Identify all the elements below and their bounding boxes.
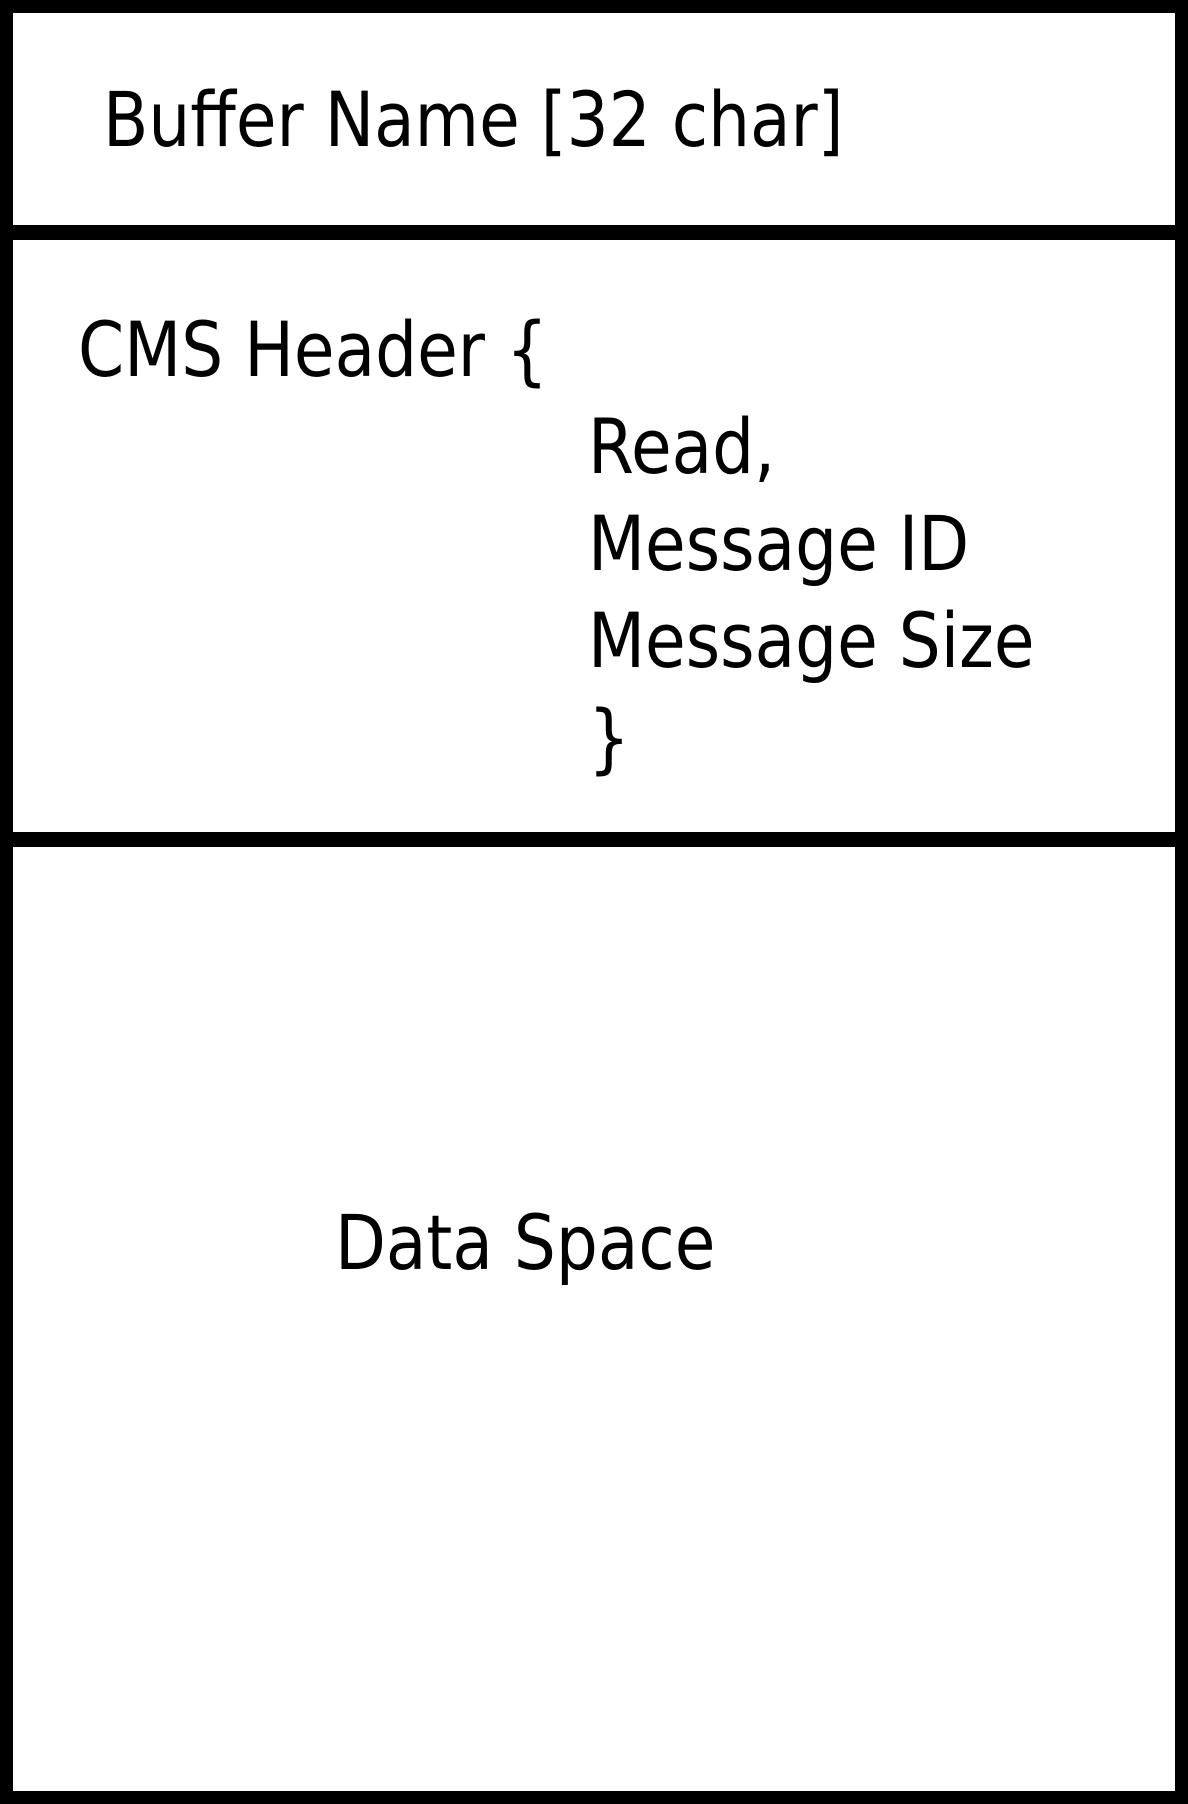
cms-header-field-message-size: Message Size: [588, 592, 1175, 689]
cms-header-field-message-id: Message ID: [588, 495, 1175, 592]
data-space-label: Data Space: [335, 1194, 715, 1291]
data-space-section: Data Space: [13, 847, 1175, 1791]
buffer-name-label: Buffer Name [32 char]: [103, 71, 843, 168]
buffer-layout-diagram: Buffer Name [32 char] CMS Header { Read,…: [0, 0, 1188, 1804]
buffer-name-section: Buffer Name [32 char]: [13, 13, 1175, 225]
buffer-name-line: Buffer Name [32 char]: [103, 71, 1175, 168]
cms-header-field-read: Read,: [588, 398, 1175, 495]
cms-header-close-label: }: [588, 689, 630, 786]
cms-header-fields: Read, Message ID Message Size }: [588, 398, 1175, 786]
cms-header-open-line: CMS Header {: [13, 301, 1175, 398]
data-space-line: Data Space: [335, 1194, 1175, 1291]
cms-header-close-line: }: [588, 689, 1175, 786]
cms-header-section: CMS Header { Read, Message ID Message Si…: [13, 240, 1175, 832]
section-divider-bottom: [13, 832, 1175, 847]
section-divider-top: [13, 225, 1175, 240]
cms-header-open-label: CMS Header {: [78, 301, 548, 398]
